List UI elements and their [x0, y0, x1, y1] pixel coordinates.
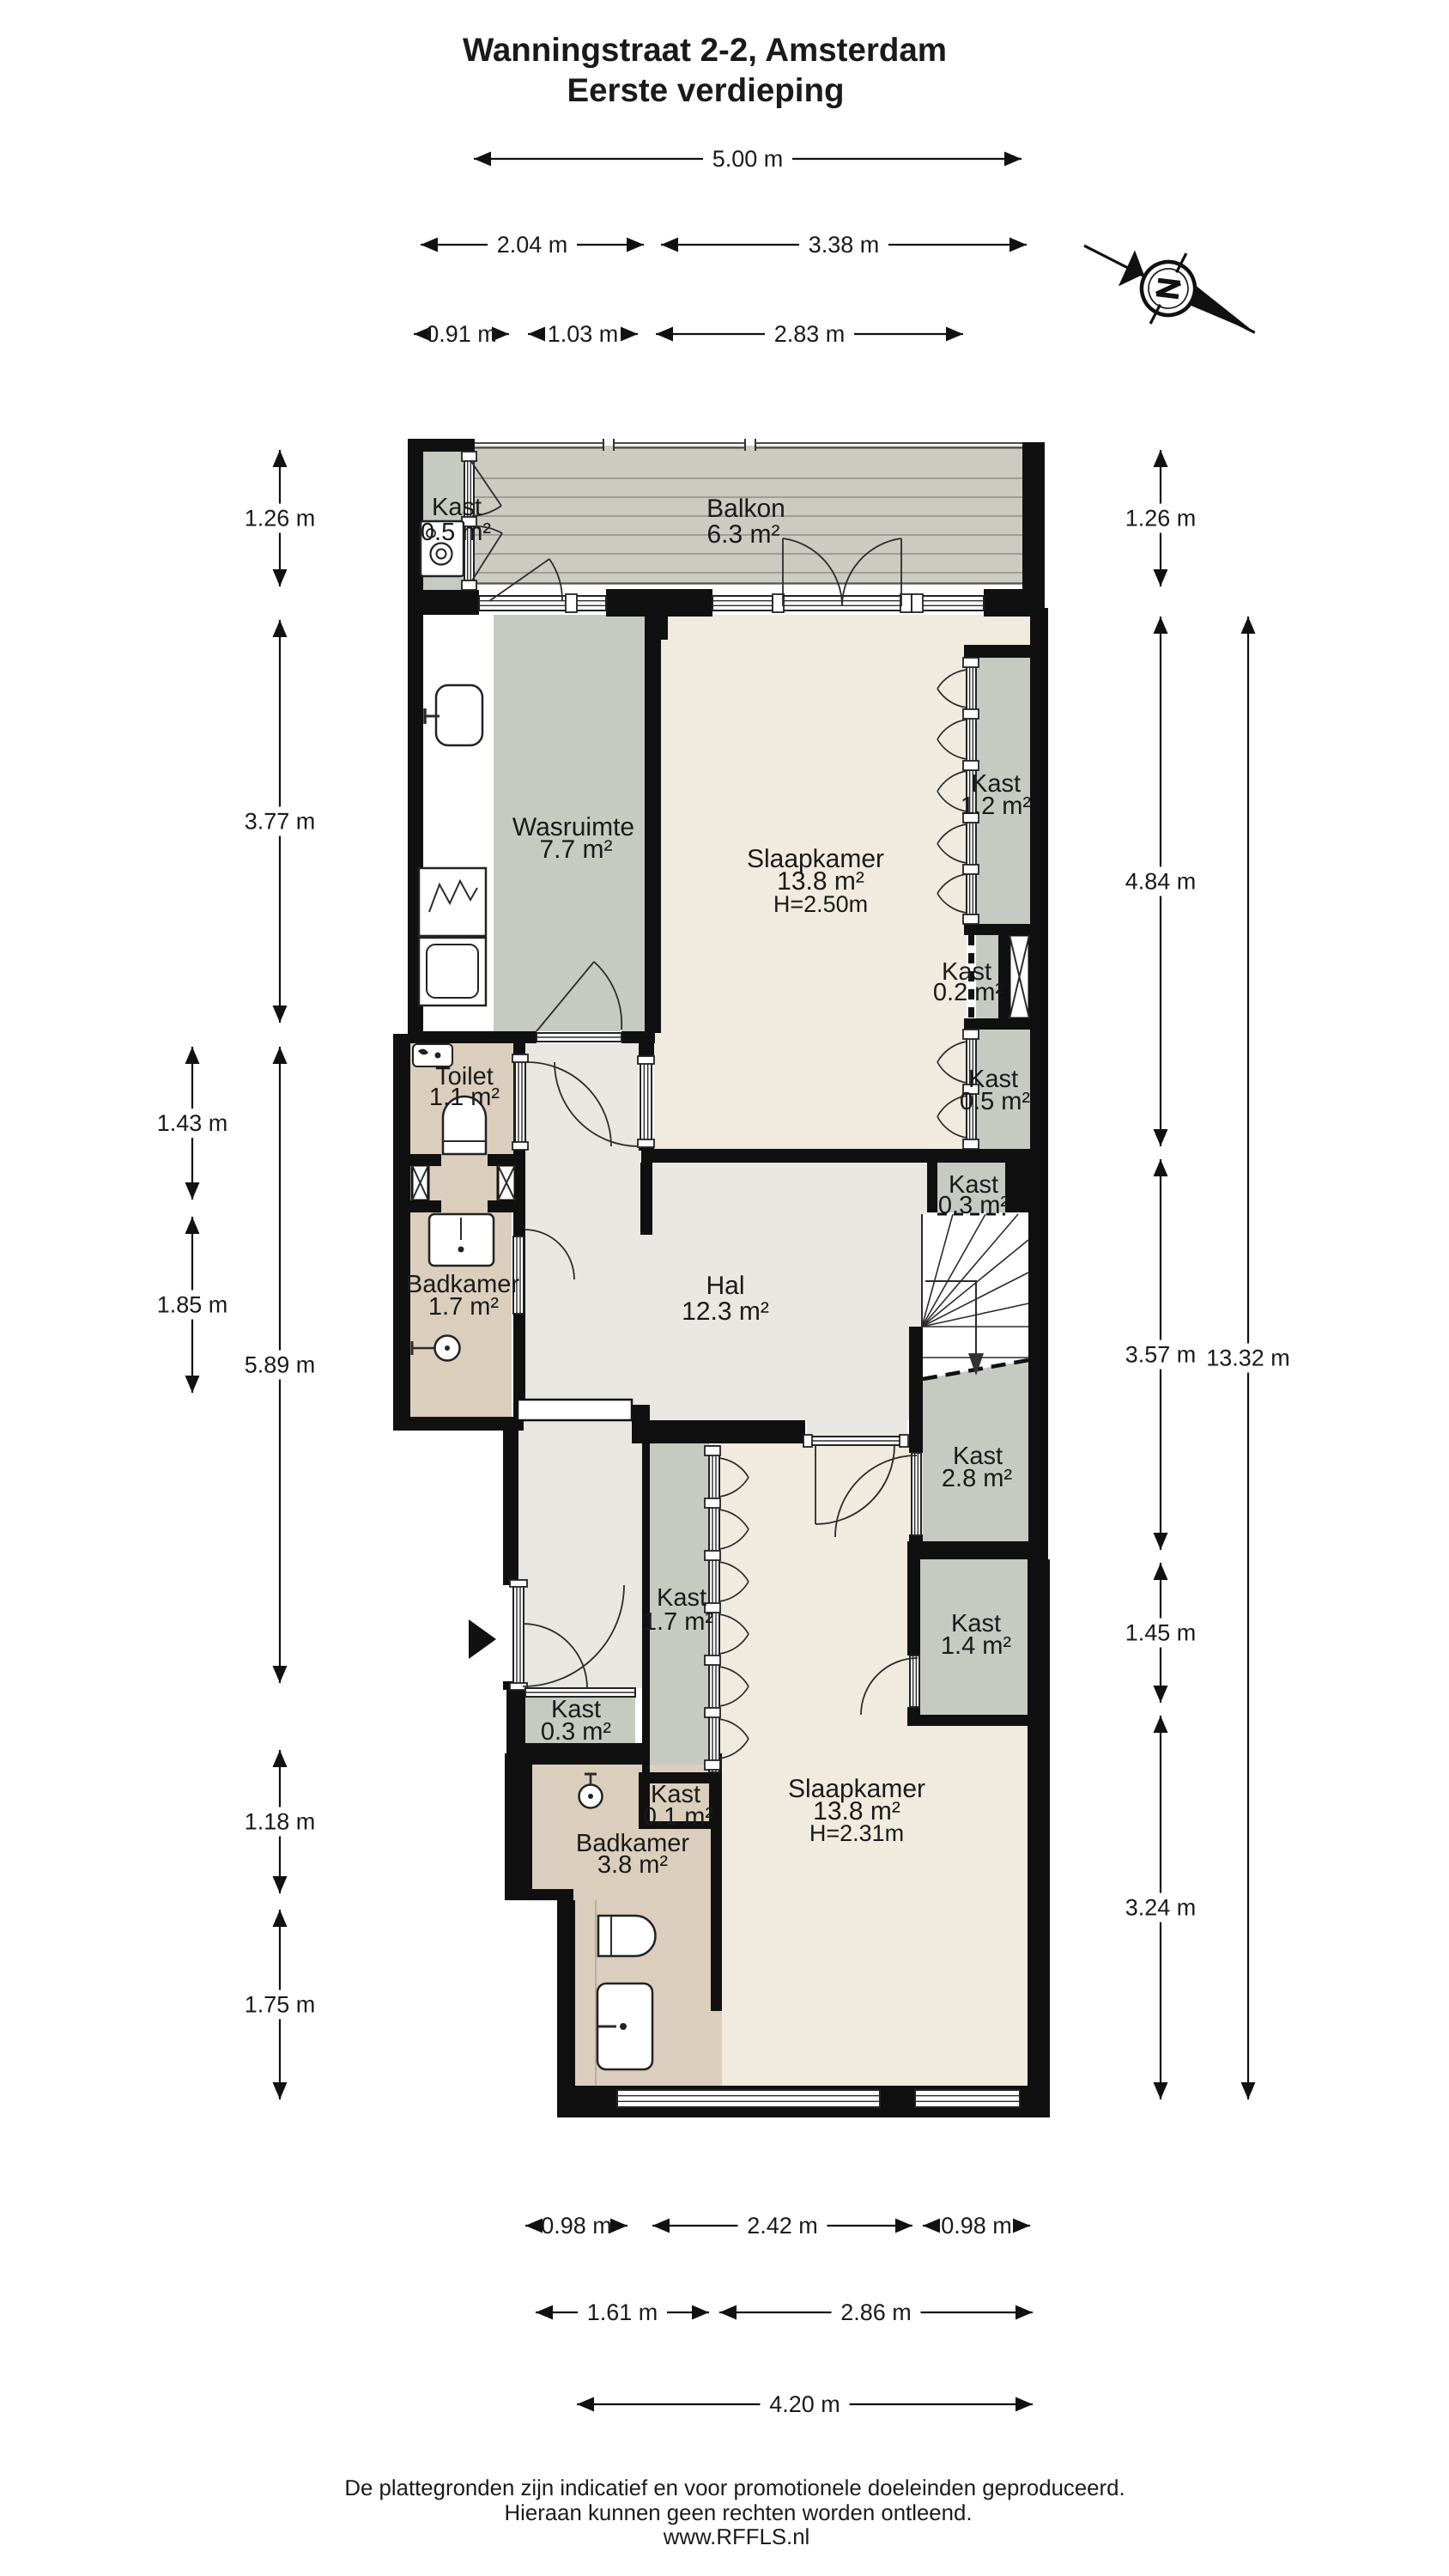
svg-text:1.26 m: 1.26 m: [1125, 506, 1197, 532]
svg-text:3.77 m: 3.77 m: [245, 809, 316, 835]
svg-text:Wanningstraat 2-2, Amsterdam: Wanningstraat 2-2, Amsterdam: [463, 32, 947, 69]
svg-text:Eerste verdieping: Eerste verdieping: [567, 72, 844, 109]
svg-text:5.00 m: 5.00 m: [712, 146, 784, 172]
svg-text:7.7 m²: 7.7 m²: [539, 835, 612, 864]
svg-text:1.2 m²: 1.2 m²: [961, 793, 1032, 820]
svg-text:13.32 m: 13.32 m: [1206, 1346, 1290, 1371]
svg-text:5.89 m: 5.89 m: [245, 1352, 316, 1378]
svg-text:0.5 m²: 0.5 m²: [421, 519, 492, 546]
svg-text:4.20 m: 4.20 m: [769, 2391, 840, 2417]
svg-text:3.8 m²: 3.8 m²: [597, 1851, 669, 1879]
svg-text:0.91 m: 0.91 m: [426, 321, 497, 347]
svg-text:2.42 m: 2.42 m: [747, 2213, 818, 2239]
svg-text:H=2.50m: H=2.50m: [773, 891, 868, 917]
svg-text:2.04 m: 2.04 m: [497, 232, 568, 258]
svg-text:4.84 m: 4.84 m: [1125, 869, 1197, 895]
svg-text:0.1 m²: 0.1 m²: [643, 1803, 714, 1831]
svg-text:12.3 m²: 12.3 m²: [682, 1297, 769, 1326]
svg-text:Kast: Kast: [432, 494, 482, 521]
svg-text:1.61 m: 1.61 m: [587, 2300, 658, 2325]
svg-text:0.3 m²: 0.3 m²: [938, 1192, 1009, 1219]
svg-text:1.4 m²: 1.4 m²: [941, 1632, 1012, 1660]
svg-text:1.18 m: 1.18 m: [245, 1809, 316, 1835]
svg-text:1.85 m: 1.85 m: [157, 1292, 228, 1318]
svg-text:2.86 m: 2.86 m: [840, 2300, 912, 2325]
svg-text:1.7 m²: 1.7 m²: [428, 1293, 500, 1321]
svg-text:3.24 m: 3.24 m: [1125, 1895, 1197, 1921]
svg-text:0.3 m²: 0.3 m²: [541, 1718, 612, 1746]
svg-text:3.57 m: 3.57 m: [1125, 1342, 1197, 1368]
svg-text:0.5 m²: 0.5 m²: [960, 1088, 1031, 1115]
svg-text:1.43 m: 1.43 m: [157, 1110, 228, 1136]
svg-text:1.7 m²: 1.7 m²: [643, 1608, 714, 1636]
svg-text:Hal: Hal: [706, 1272, 744, 1300]
svg-text:1.75 m: 1.75 m: [245, 1992, 316, 2018]
svg-text:De plattegronden zijn indicati: De plattegronden zijn indicatief en voor…: [344, 2476, 1125, 2500]
svg-text:6.3 m²: 6.3 m²: [706, 520, 779, 549]
svg-text:www.RFFLS.nl: www.RFFLS.nl: [663, 2525, 810, 2549]
svg-text:3.38 m: 3.38 m: [809, 232, 880, 258]
svg-text:1.26 m: 1.26 m: [245, 506, 316, 532]
svg-text:0.2 m²: 0.2 m²: [933, 979, 1004, 1006]
svg-text:0.98 m: 0.98 m: [941, 2213, 1012, 2239]
svg-text:2.83 m: 2.83 m: [774, 321, 846, 347]
svg-text:1.1 m²: 1.1 m²: [429, 1084, 500, 1111]
svg-text:1.45 m: 1.45 m: [1125, 1620, 1197, 1646]
svg-text:1.03 m: 1.03 m: [548, 321, 619, 347]
svg-text:H=2.31m: H=2.31m: [809, 1820, 904, 1846]
svg-text:0.98 m: 0.98 m: [541, 2213, 612, 2239]
svg-text:Hieraan kunnen geen rechten wo: Hieraan kunnen geen rechten worden ontle…: [505, 2501, 973, 2525]
svg-text:2.8 m²: 2.8 m²: [942, 1465, 1013, 1492]
svg-text:Balkon: Balkon: [706, 495, 785, 523]
